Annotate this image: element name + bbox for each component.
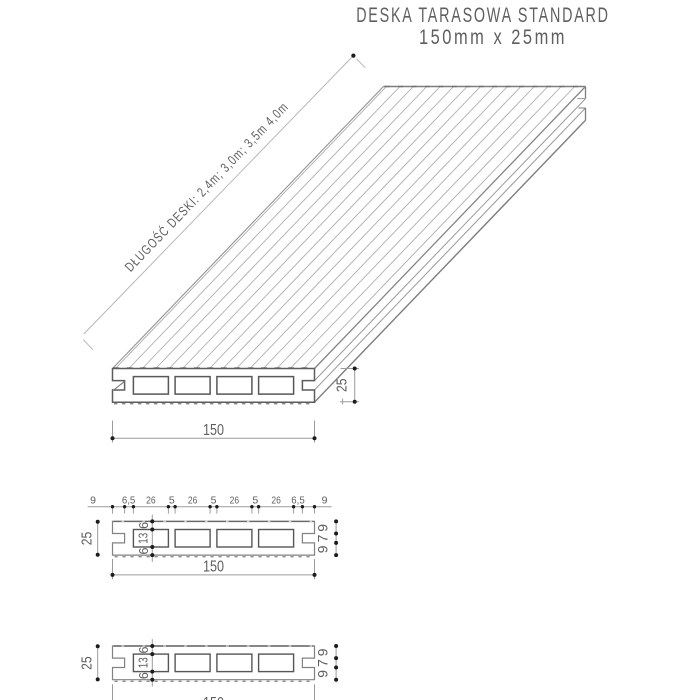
svg-text:5: 5 xyxy=(211,495,217,507)
svg-text:25: 25 xyxy=(79,532,96,546)
svg-text:150: 150 xyxy=(203,422,224,439)
svg-text:150mm x 25mm: 150mm x 25mm xyxy=(419,26,567,49)
svg-text:6,5: 6,5 xyxy=(122,495,136,507)
svg-text:7: 7 xyxy=(315,659,331,667)
svg-text:9: 9 xyxy=(315,670,331,678)
svg-text:13: 13 xyxy=(136,657,151,668)
svg-text:26: 26 xyxy=(146,495,156,507)
svg-text:6: 6 xyxy=(137,672,151,679)
svg-text:6: 6 xyxy=(137,646,151,653)
svg-text:7: 7 xyxy=(315,534,331,542)
svg-text:6: 6 xyxy=(137,547,151,554)
svg-text:9: 9 xyxy=(315,524,331,532)
svg-text:13: 13 xyxy=(136,533,151,544)
svg-text:150: 150 xyxy=(203,695,224,700)
svg-text:25: 25 xyxy=(334,379,351,393)
svg-text:9: 9 xyxy=(315,545,331,553)
svg-text:6,5: 6,5 xyxy=(291,495,305,507)
svg-text:6: 6 xyxy=(137,522,151,529)
svg-text:9: 9 xyxy=(315,648,331,656)
svg-text:26: 26 xyxy=(188,495,198,507)
svg-text:9: 9 xyxy=(90,495,96,507)
svg-text:25: 25 xyxy=(79,656,96,670)
svg-text:5: 5 xyxy=(169,495,175,507)
svg-text:150: 150 xyxy=(203,558,224,575)
svg-text:9: 9 xyxy=(322,495,328,507)
svg-text:26: 26 xyxy=(271,495,281,507)
svg-text:26: 26 xyxy=(230,495,240,507)
svg-text:5: 5 xyxy=(252,495,258,507)
svg-text:DESKA TARASOWA STANDARD: DESKA TARASOWA STANDARD xyxy=(356,4,610,27)
